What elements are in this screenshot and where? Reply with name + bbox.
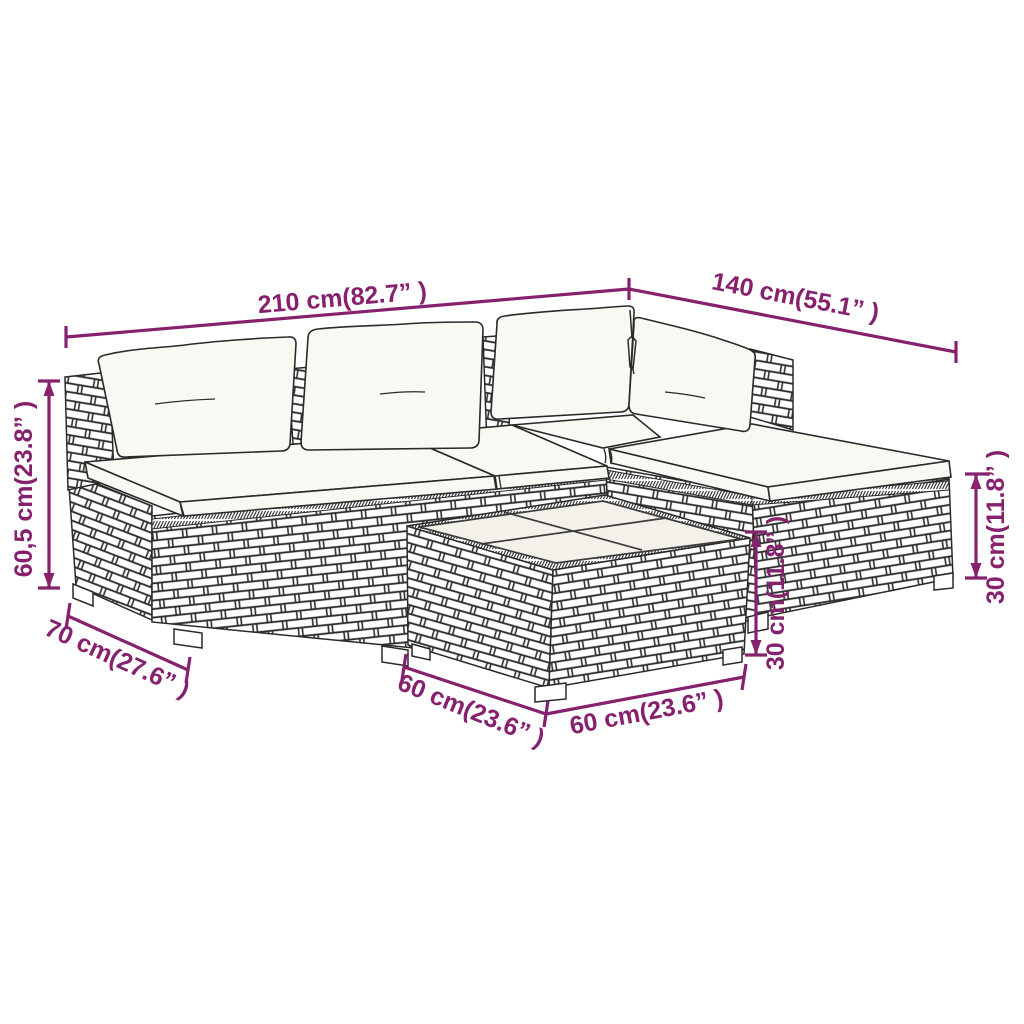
svg-text:140 cm(55.1” ): 140 cm(55.1” ) [710,267,882,327]
svg-text:70 cm(27.6” ): 70 cm(27.6” ) [41,614,194,703]
svg-text:30 cm(11.8” ): 30 cm(11.8” ) [762,516,790,670]
svg-text:60 cm(23.6” ): 60 cm(23.6” ) [567,684,725,740]
svg-text:30 cm(11.8” ): 30 cm(11.8” ) [982,450,1010,604]
svg-text:60,5 cm(23.8” ): 60,5 cm(23.8” ) [10,401,38,578]
